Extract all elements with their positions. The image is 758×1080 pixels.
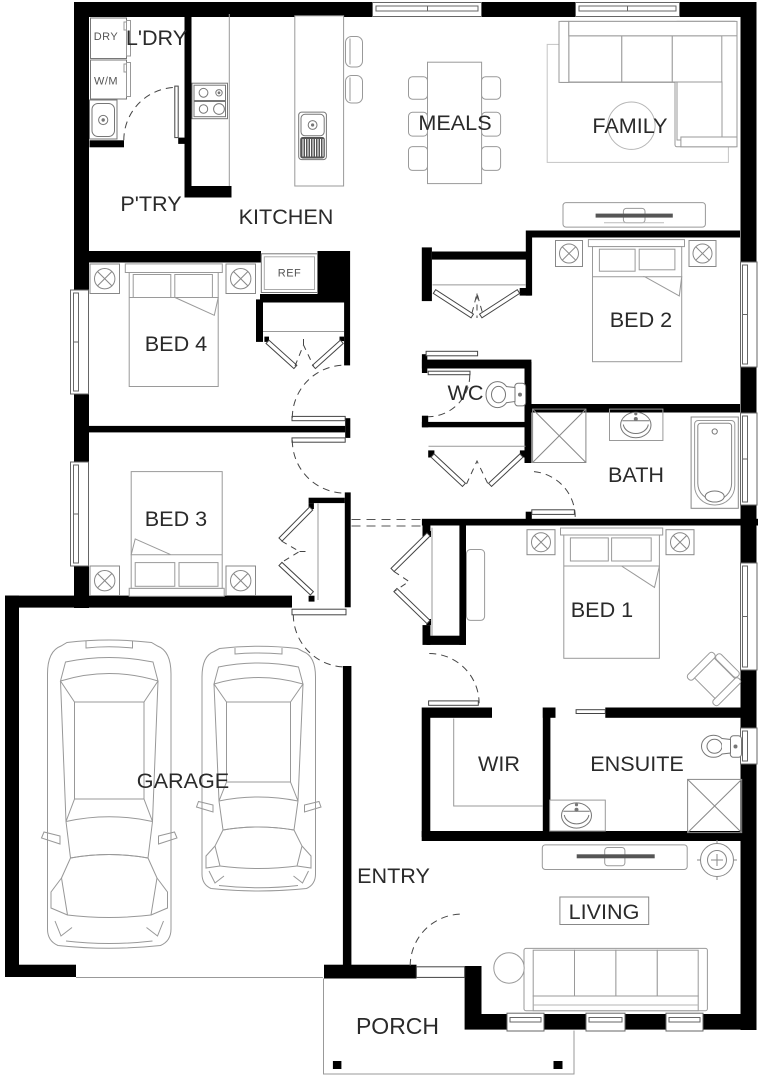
svg-text:BED 4: BED 4 xyxy=(145,331,207,356)
svg-text:GARAGE: GARAGE xyxy=(137,768,229,793)
svg-text:KITCHEN: KITCHEN xyxy=(239,204,334,229)
svg-text:LIVING: LIVING xyxy=(569,899,640,924)
svg-text:W/M: W/M xyxy=(94,76,118,88)
svg-text:REF: REF xyxy=(278,268,302,280)
svg-text:DRY: DRY xyxy=(94,31,119,43)
svg-text:FAMILY: FAMILY xyxy=(592,113,667,138)
svg-text:ENTRY: ENTRY xyxy=(357,863,430,888)
svg-text:BED 3: BED 3 xyxy=(145,506,207,531)
svg-text:L'DRY: L'DRY xyxy=(126,25,187,50)
svg-text:ENSUITE: ENSUITE xyxy=(590,751,684,776)
svg-text:P'TRY: P'TRY xyxy=(120,191,181,216)
svg-text:MEALS: MEALS xyxy=(418,110,491,135)
svg-text:WIR: WIR xyxy=(478,751,520,776)
svg-text:BATH: BATH xyxy=(608,462,664,487)
svg-text:BED 1: BED 1 xyxy=(571,597,633,622)
svg-text:PORCH: PORCH xyxy=(356,1013,439,1039)
svg-text:BED 2: BED 2 xyxy=(610,307,672,332)
svg-text:WC: WC xyxy=(448,380,484,405)
